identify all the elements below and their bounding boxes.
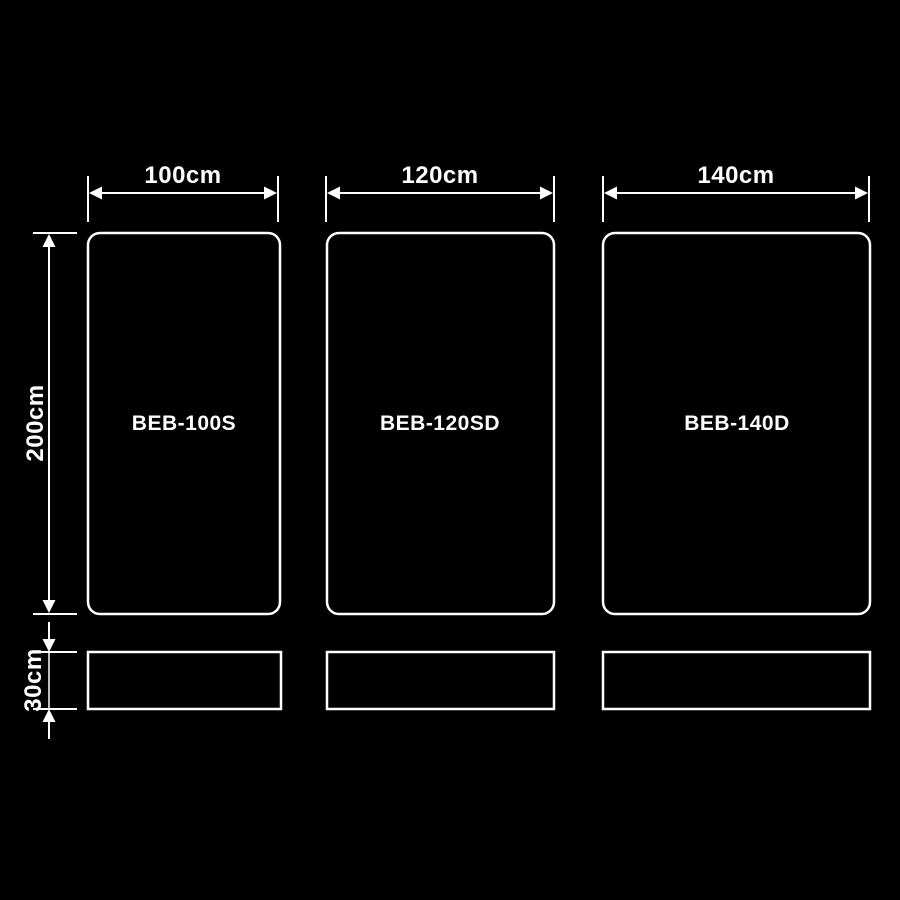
arrowhead-right-icon xyxy=(264,187,277,200)
base-outline-beb-120sd xyxy=(327,652,554,709)
arrowhead-left-icon xyxy=(89,187,102,200)
arrowhead-left-icon xyxy=(604,187,617,200)
model-label-beb-100s: BEB-100S xyxy=(132,412,236,436)
width-label-beb-140d: 140cm xyxy=(697,162,774,190)
height-label: 200cm xyxy=(22,384,50,461)
diagram-linework xyxy=(0,0,900,900)
arrowhead-up-icon xyxy=(43,234,56,247)
base-height-label: 30cm xyxy=(20,648,48,711)
model-label-beb-120sd: BEB-120SD xyxy=(380,412,500,436)
bed-size-diagram: 100cm 120cm 140cm 200cm 30cm BEB-100S BE… xyxy=(0,0,900,900)
arrowhead-right-icon xyxy=(540,187,553,200)
arrowhead-right-icon xyxy=(855,187,868,200)
arrowhead-down-icon xyxy=(43,600,56,613)
model-label-beb-140d: BEB-140D xyxy=(684,412,790,436)
base-outline-beb-100s xyxy=(88,652,281,709)
width-label-beb-100s: 100cm xyxy=(144,162,221,190)
arrowhead-left-icon xyxy=(327,187,340,200)
base-outline-beb-140d xyxy=(603,652,870,709)
width-label-beb-120sd: 120cm xyxy=(401,162,478,190)
